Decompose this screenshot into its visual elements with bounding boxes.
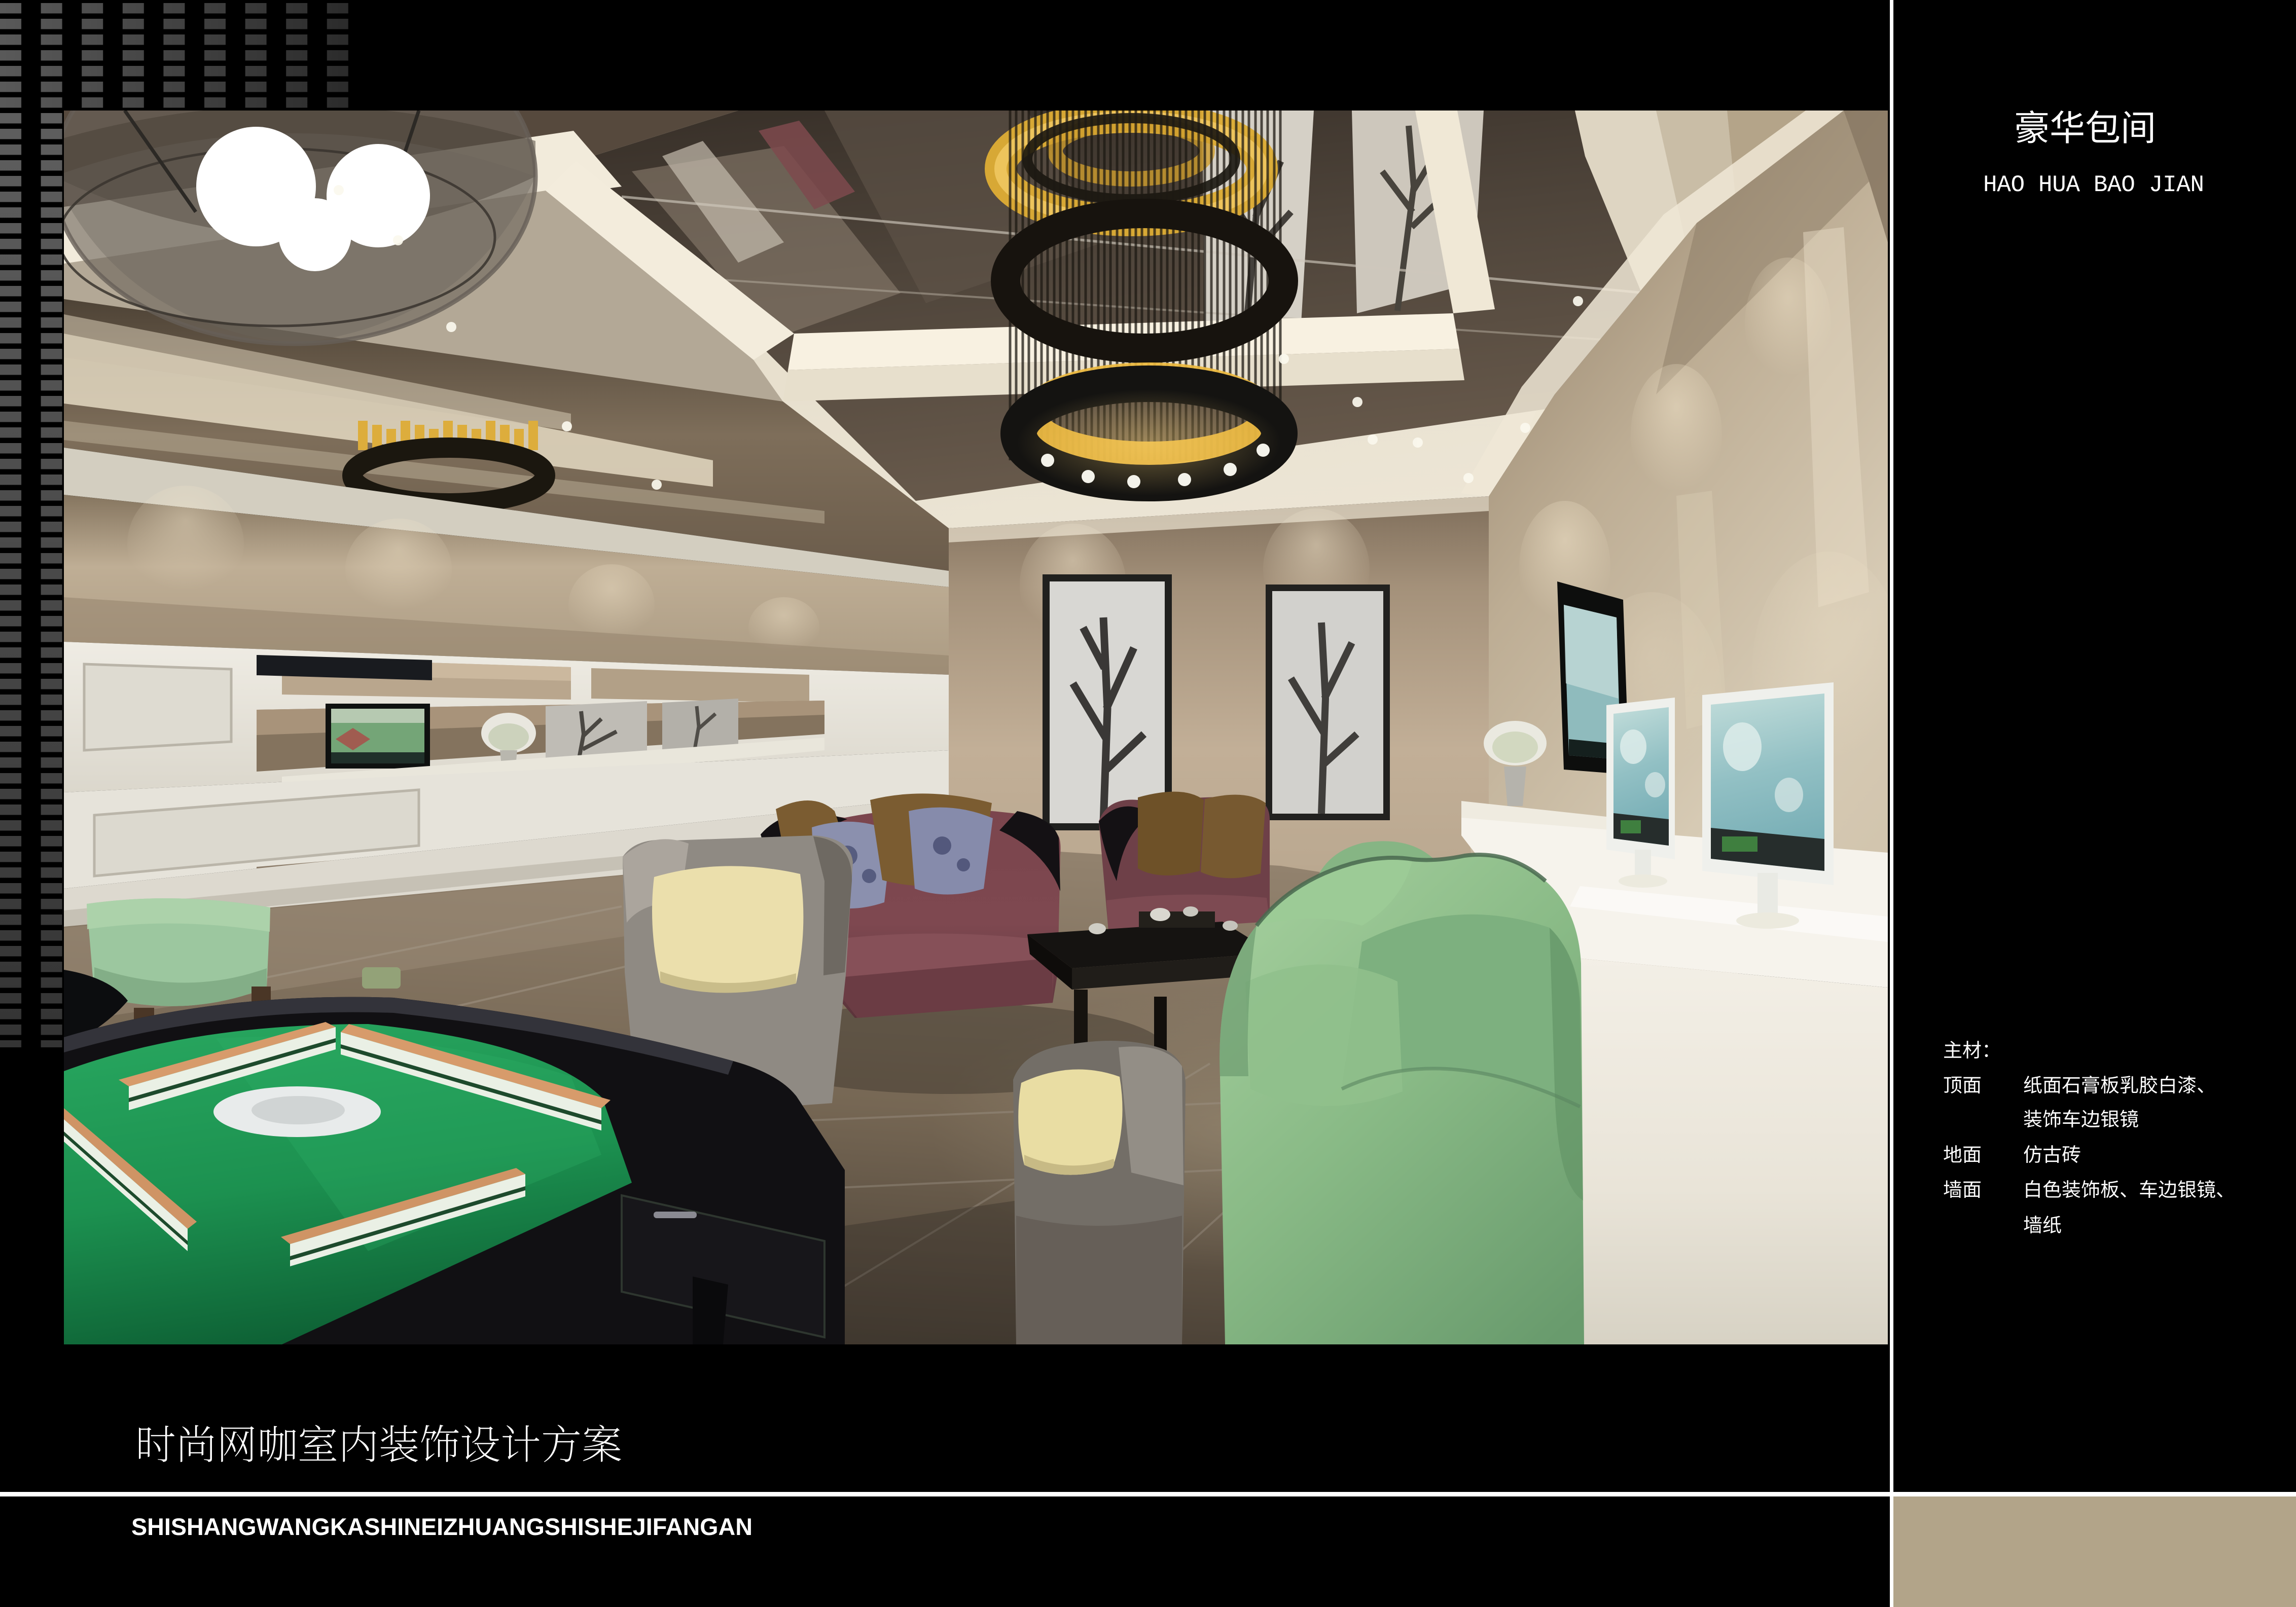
svg-text:SHISHANGWANGKASHINEIZHUANGSHIS: SHISHANGWANGKASHINEIZHUANGSHISHEJIFANGAN bbox=[131, 1513, 752, 1540]
svg-text:HAO HUA BAO JIAN: HAO HUA BAO JIAN bbox=[1983, 172, 2204, 198]
